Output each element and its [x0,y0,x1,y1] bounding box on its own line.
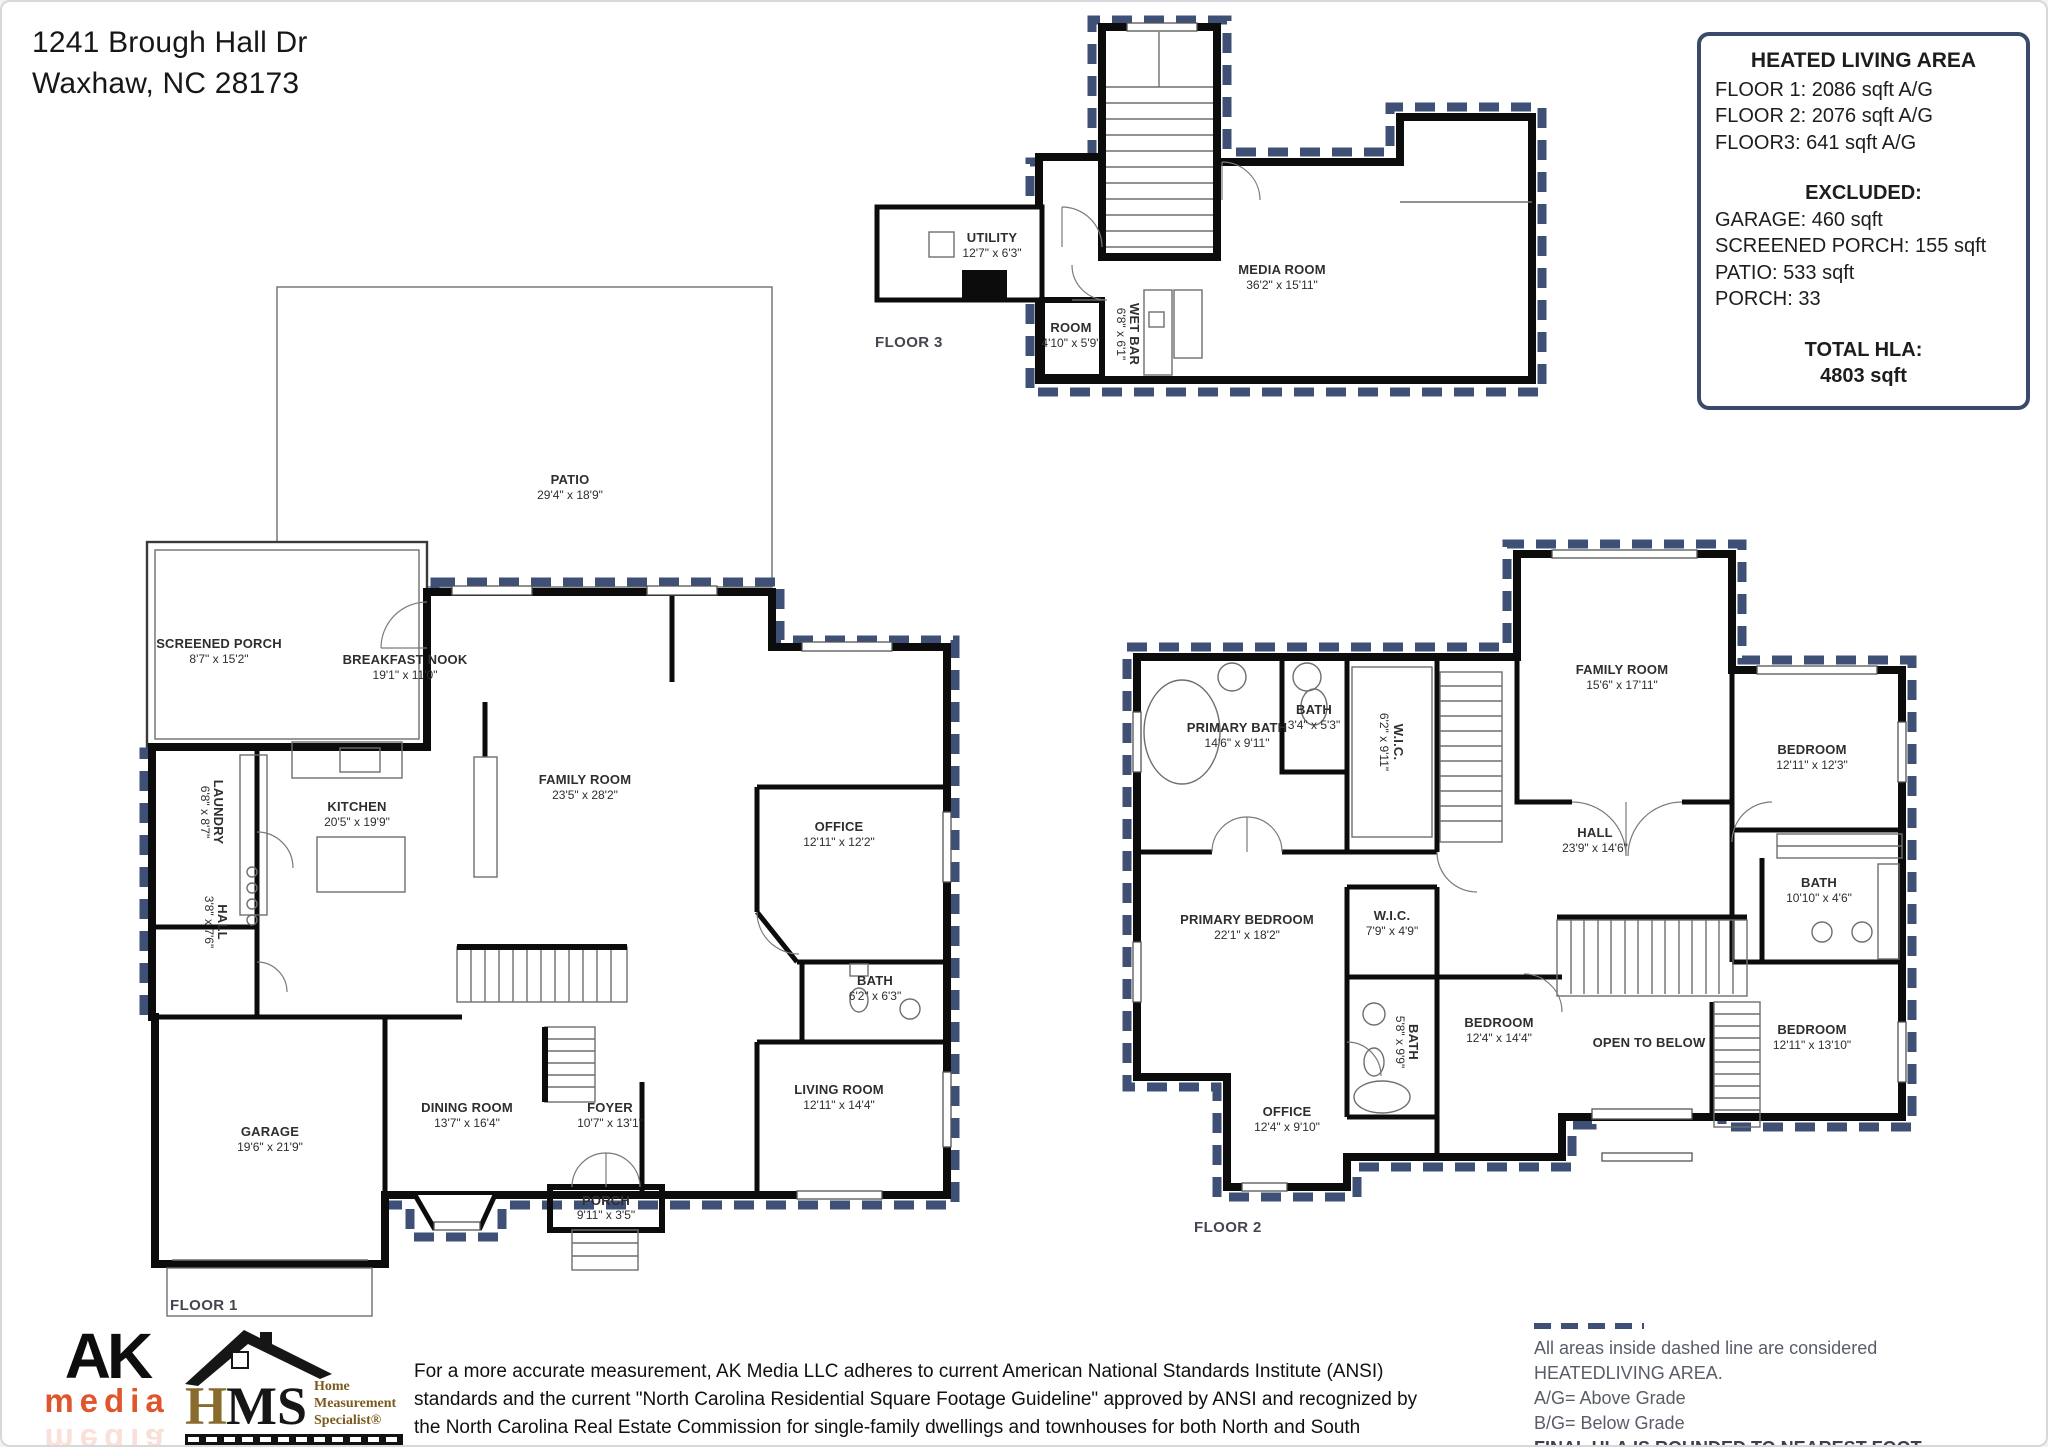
room-label: BREAKFAST NOOK [343,652,468,667]
room-label: UTILITY [967,230,1018,245]
room-dims: 12'11" x 12'2" [803,835,875,849]
room-label: BATH [857,973,893,988]
room-label: OFFICE [815,819,864,834]
room-label: W.I.C. [1391,724,1406,761]
room-dims: 12'4" x 9'10" [1254,1120,1320,1134]
floor2-plan: PRIMARY BATH 14'6" x 9'11" BATH 3'4" x 5… [1122,542,1922,1242]
room-label: WET BAR [1127,303,1142,365]
room-label: KITCHEN [327,799,386,814]
room-label: BEDROOM [1777,1022,1846,1037]
hms-logo-graphic: H MS Home Measurement Specialist® [182,1324,417,1447]
floor2-walls [1137,554,1902,1187]
room-label: PATIO [551,472,590,487]
room-label: FAMILY ROOM [539,772,632,787]
room-label: MEDIA ROOM [1238,262,1325,277]
hla-excluded-porch: PORCH: 33 [1715,286,2012,313]
hms-chimney-icon [260,1332,272,1348]
legend-line2: A/G= Above Grade [1534,1386,1954,1411]
room-label: GARAGE [241,1124,299,1139]
room-dims: 36'2" x 15'11" [1246,278,1318,292]
room-label: LIVING ROOM [794,1082,884,1097]
room-label: PRIMARY BATH [1187,720,1287,735]
legend-line1: All areas inside dashed line are conside… [1534,1336,1954,1386]
room-dims: 10'7" x 13'1" [577,1116,643,1130]
room-dims: 20'5" x 19'9" [324,815,390,829]
room-label: OPEN TO BELOW [1593,1035,1706,1050]
hla-title: HEATED LIVING AREA [1715,48,2012,75]
room-dims: 12'7" x 6'3" [962,246,1021,260]
ak-logo-media-text: media [32,1384,182,1417]
room-dims: 8'7" x 15'2" [189,652,248,666]
hms-line2: Measurement [314,1396,396,1411]
hla-excluded-title: EXCLUDED: [1715,180,2012,207]
dashed-line-sample [1534,1322,1644,1330]
room-label: BEDROOM [1464,1015,1533,1030]
room-dims: 15'6" x 17'11" [1586,678,1658,692]
room-dims: 12'11" x 12'3" [1776,758,1848,772]
floor1-plan: PATIO 29'4" x 18'9" SCREENED PORCH 8'7" … [102,272,982,1352]
hla-excluded-garage: GARAGE: 460 sqft [1715,207,2012,234]
room-dims: 23'9" x 14'6" [1562,841,1628,855]
hla-floor1: FLOOR 1: 2086 sqft A/G [1715,77,2012,104]
property-address: 1241 Brough Hall Dr Waxhaw, NC 28173 [32,22,308,104]
room-dims: 10'10" x 4'6" [1786,891,1852,905]
address-line2: Waxhaw, NC 28173 [32,63,308,104]
ak-media-logo: AK media media [32,1324,182,1447]
room-dims: 3'8" x 7'6" [202,896,216,948]
hla-total-value: 4803 sqft [1715,363,2012,390]
room-dims: 5'8" x 9'9" [1393,1016,1407,1068]
room-dims: 14'6" x 9'11" [1205,736,1270,750]
room-dims: 12'4" x 14'4" [1466,1031,1532,1045]
floor1-label: FLOOR 1 [170,1297,238,1314]
room-dims: 4'10" x 5'9" [1041,336,1100,350]
room-dims: 6'2" x 9'11" [1377,713,1391,771]
hla-floor3: FLOOR3: 641 sqft A/G [1715,130,2012,157]
room-dims: 9'11" x 3'5" [577,1208,635,1222]
room-label: BATH [1406,1024,1421,1060]
room-dims: 6'8" x 8'7" [198,786,212,838]
room-dims: 7'9" x 4'9" [1366,924,1418,938]
hms-line1: Home [314,1379,350,1394]
hms-line3: Specialist® [314,1413,382,1428]
legend-line3: B/G= Below Grade [1534,1411,1954,1436]
room-dims: 6'8" x 6'1" [1114,308,1128,360]
heated-living-area-box: HEATED LIVING AREA FLOOR 1: 2086 sqft A/… [1697,32,2030,410]
ak-logo-text: AK [32,1324,182,1388]
room-label: PRIMARY BEDROOM [1180,912,1314,927]
room-dims: 6'2" x 6'3" [849,989,901,1003]
hla-legend: All areas inside dashed line are conside… [1534,1322,1954,1447]
hla-floor2: FLOOR 2: 2076 sqft A/G [1715,103,2012,130]
floorplan-page: 1241 Brough Hall Dr Waxhaw, NC 28173 HEA… [0,0,2048,1447]
room-label: HALL [215,904,230,939]
room-dims: 22'1" x 18'2" [1214,928,1280,942]
room-dims: 13'7" x 16'4" [434,1116,500,1130]
room-label: SCREENED PORCH [156,636,282,651]
hms-ms: MS [226,1376,307,1436]
room-label: LAUNDRY [211,780,226,845]
spacer [1715,313,2012,337]
room-dims: 19'1" x 11'0" [373,668,438,682]
hla-excluded-patio: PATIO: 533 sqft [1715,260,2012,287]
hla-total-title: TOTAL HLA: [1715,337,2012,364]
spacer [1715,156,2012,180]
room-dims: 23'5" x 28'2" [552,788,618,802]
room-dims: 19'6" x 21'9" [237,1140,303,1154]
room-label: DINING ROOM [421,1100,513,1115]
address-line1: 1241 Brough Hall Dr [32,22,308,63]
hla-excluded-screened-porch: SCREENED PORCH: 155 sqft [1715,233,2012,260]
measurement-disclaimer: For a more accurate measurement, AK Medi… [414,1358,1419,1447]
room-label: OFFICE [1263,1104,1312,1119]
room-label: HALL [1577,825,1612,840]
room-label: ROOM [1050,320,1091,335]
room-label: FAMILY ROOM [1576,662,1669,677]
hms-logo: H MS Home Measurement Specialist® [182,1324,417,1447]
room-dims: 29'4" x 18'9" [537,488,603,502]
hms-window-icon [232,1352,248,1368]
room-label: BATH [1801,875,1837,890]
hms-h: H [185,1376,227,1436]
floor2-label: FLOOR 2 [1194,1219,1262,1236]
room-label: FOYER [587,1100,633,1115]
room-label: PORCH [582,1193,630,1208]
room-label: W.I.C. [1374,908,1411,923]
room-dims: 12'11" x 14'4" [803,1098,875,1112]
room-dims: 12'11" x 13'10" [1773,1038,1851,1052]
legend-line4: FINAL HLA IS ROUNDED TO NEAREST FOOT [1534,1436,1954,1447]
ak-logo-reflection: media [32,1419,182,1447]
room-dims: 3'4" x 5'3" [1288,718,1340,732]
room-label: BEDROOM [1777,742,1846,757]
room-label: BATH [1296,702,1332,717]
